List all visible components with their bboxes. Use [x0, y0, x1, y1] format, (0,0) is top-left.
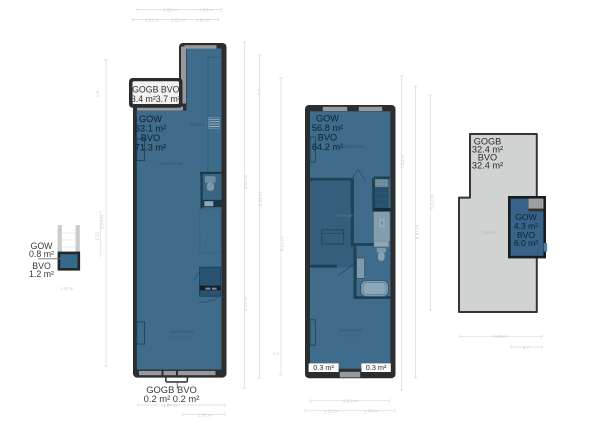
- svg-text:6.91 m: 6.91 m: [415, 225, 420, 239]
- svg-text:2.62 m: 2.62 m: [343, 399, 357, 404]
- svg-text:3.4 m²3.7 m²: 3.4 m²3.7 m²: [131, 94, 181, 104]
- svg-text:5.12 m: 5.12 m: [430, 195, 435, 209]
- svg-text:2.02 m: 2.02 m: [198, 412, 212, 417]
- svg-text:GOGB BVO: GOGB BVO: [132, 85, 180, 95]
- svg-text:71.3 m²: 71.3 m²: [135, 143, 166, 153]
- svg-text:GOW: GOW: [139, 114, 162, 124]
- svg-text:4.2 x 5.3: 4.2 x 5.3: [344, 334, 359, 338]
- svg-text:zolder: zolder: [482, 230, 495, 236]
- svg-text:woonkamer: woonkamer: [159, 161, 183, 166]
- svg-text:63.1 m²: 63.1 m²: [135, 124, 166, 134]
- svg-text:4.12 m: 4.12 m: [243, 297, 248, 311]
- svg-text:1.34 m: 1.34 m: [364, 409, 378, 414]
- svg-text:1.0: 1.0: [95, 90, 100, 97]
- svg-text:1.90 m: 1.90 m: [61, 286, 74, 291]
- svg-text:slaapkamer: slaapkamer: [339, 328, 363, 333]
- svg-text:1.81 m: 1.81 m: [196, 17, 210, 22]
- svg-text:slaapkamer: slaapkamer: [342, 144, 366, 149]
- svg-text:5.12 m: 5.12 m: [280, 237, 285, 251]
- svg-text:7.43 m: 7.43 m: [400, 155, 405, 169]
- svg-text:woonkamer: woonkamer: [170, 329, 194, 334]
- svg-text:1.2: 1.2: [273, 351, 280, 356]
- svg-text:1.21 m: 1.21 m: [324, 409, 338, 414]
- svg-text:BVO: BVO: [318, 133, 337, 143]
- svg-text:1.0: 1.0: [257, 88, 262, 95]
- svg-text:2.62 m: 2.62 m: [163, 7, 177, 12]
- svg-text:0.3 m²: 0.3 m²: [366, 363, 387, 372]
- svg-text:4.66 m: 4.66 m: [493, 334, 507, 339]
- svg-text:0.8 m²: 0.8 m²: [29, 249, 54, 259]
- svg-text:1.52: 1.52: [95, 231, 100, 240]
- svg-text:1.7: 1.7: [523, 345, 530, 350]
- svg-text:0.2 m² 0.2 m²: 0.2 m² 0.2 m²: [144, 393, 200, 404]
- svg-text:8.69 m: 8.69 m: [258, 192, 263, 206]
- svg-text:56.8 m²: 56.8 m²: [312, 123, 343, 133]
- svg-text:1.21 m: 1.21 m: [145, 17, 159, 22]
- svg-text:8.04 m: 8.04 m: [100, 215, 105, 229]
- svg-text:1.93 m: 1.93 m: [199, 7, 213, 12]
- svg-text:6.0 m²: 6.0 m²: [514, 238, 538, 248]
- svg-text:BVO: BVO: [141, 133, 160, 143]
- svg-text:keuken: keuken: [190, 122, 205, 127]
- svg-text:GOW: GOW: [316, 114, 339, 124]
- svg-text:3.51 m: 3.51 m: [243, 175, 248, 189]
- svg-text:1.2 m²: 1.2 m²: [29, 269, 54, 279]
- svg-text:32.4 m²: 32.4 m²: [472, 161, 503, 171]
- svg-text:4.05 x 7.45: 4.05 x 7.45: [172, 335, 191, 339]
- svg-text:2.02 m: 2.02 m: [171, 17, 185, 22]
- svg-text:0.3 m²: 0.3 m²: [313, 363, 334, 372]
- svg-text:64.2 m²: 64.2 m²: [312, 142, 343, 152]
